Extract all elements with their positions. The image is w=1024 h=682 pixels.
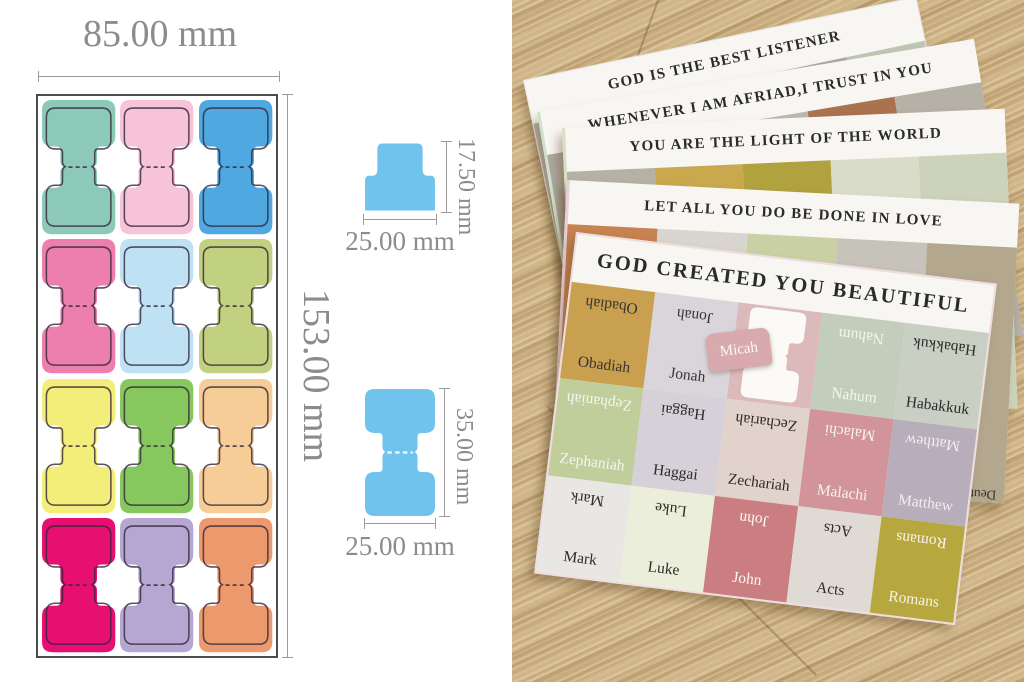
book-label-flipped: Haggai <box>660 400 707 423</box>
book-label: Zephaniah <box>558 449 625 475</box>
book-label-flipped: Luke <box>654 497 688 519</box>
bible-tab-cell: JohnJohn <box>703 496 798 603</box>
book-label: Zechariah <box>727 470 791 495</box>
book-label-flipped: Mark <box>570 487 606 509</box>
book-label: Luke <box>647 558 681 580</box>
bible-tab-cell: MalachiMalachi <box>798 409 893 516</box>
sheet-height-dimension-line <box>287 94 288 658</box>
peeled-tab: Micah <box>705 327 773 373</box>
folded-tab-shape <box>363 141 437 213</box>
sheet-tab <box>41 238 116 374</box>
product-listing-image: 85.00 mm 153.00 mm 17.50 mm 25.00 mm 35.… <box>0 0 1024 682</box>
full-tab-height-label: 35.00 mm <box>450 382 477 532</box>
sheet-tab <box>119 517 194 653</box>
sheet-tab <box>119 378 194 514</box>
book-label-flipped: Acts <box>823 518 853 539</box>
book-label: Nahum <box>830 385 877 408</box>
product-photo: GOD IS THE BEST LISTENER WHENEVER I AM A… <box>512 0 1024 682</box>
bible-tab-cell: NahumNahum <box>810 313 905 420</box>
book-label-flipped: Nahum <box>838 324 885 347</box>
book-label-flipped: Malachi <box>823 420 876 444</box>
tab-sheet <box>36 94 278 658</box>
full-tab-width-label: 25.00 mm <box>330 531 470 562</box>
book-label-flipped: Romans <box>895 527 948 551</box>
book-label: Habakkuk <box>905 394 970 420</box>
book-label: John <box>731 569 762 590</box>
sheet-tab <box>119 238 194 374</box>
book-label-flipped: Matthew <box>905 430 962 455</box>
bible-tab-cell: Micah <box>727 302 822 409</box>
sheet-width-dimension-line <box>38 76 280 77</box>
book-label-flipped: Zephaniah <box>566 389 633 415</box>
book-label: Jonah <box>668 365 706 387</box>
book-label: Romans <box>887 588 940 612</box>
book-label: Mark <box>562 548 598 570</box>
full-tab-width-line <box>364 523 436 524</box>
peeled-tab-label: Micah <box>719 339 759 361</box>
folded-tab-width-label: 25.00 mm <box>330 226 470 257</box>
book-label: Haggai <box>652 461 699 484</box>
sheet-dimension-diagram: 85.00 mm 153.00 mm 17.50 mm 25.00 mm 35.… <box>0 0 512 682</box>
bible-tab-cell: HabakkukHabakkuk <box>894 323 989 430</box>
sheet-tab <box>198 238 273 374</box>
sheet-tab <box>198 517 273 653</box>
book-label: Obadiah <box>577 354 631 378</box>
bible-tab-cell: ActsActs <box>786 506 881 613</box>
sheet-tab <box>41 517 116 653</box>
sheet-height-dimension-label: 153.00 mm <box>294 94 338 658</box>
book-label-flipped: John <box>739 508 770 529</box>
bible-tab-grid: ObadiahObadiahJonahJonahMicahNahumNahumH… <box>536 282 988 623</box>
sheet-tab <box>119 99 194 235</box>
bible-tab-cell: RomansRomans <box>870 516 965 623</box>
full-tab-height-line <box>444 388 445 517</box>
card-god-created-you-beautiful: GOD CREATED YOU BEAUTIFUL ObadiahObadiah… <box>534 232 997 625</box>
book-label-flipped: Jonah <box>676 304 714 326</box>
sheet-tab <box>198 378 273 514</box>
bible-tab-cell: MatthewMatthew <box>882 419 977 526</box>
bible-tab-cell: ZechariahZechariah <box>715 399 810 506</box>
bible-tab-cell: HaggaiHaggai <box>632 389 727 496</box>
bible-tab-cell: MarkMark <box>536 475 631 582</box>
book-label-flipped: Obadiah <box>584 293 638 317</box>
sheet-tab <box>41 378 116 514</box>
book-label-flipped: Zechariah <box>734 409 798 434</box>
bible-tab-cell: LukeLuke <box>620 485 715 592</box>
folded-tab-width-line <box>363 219 437 220</box>
bible-tab-cell: ZephaniahZephaniah <box>548 378 643 485</box>
sheet-tab <box>41 99 116 235</box>
book-label: Malachi <box>816 481 869 505</box>
book-label-flipped: Habakkuk <box>912 333 977 359</box>
bible-tab-cell: ObadiahObadiah <box>560 282 655 389</box>
book-label: Acts <box>815 579 845 600</box>
folded-tab-height-line <box>446 141 447 213</box>
sheet-tab <box>198 99 273 235</box>
book-label: Matthew <box>897 491 954 516</box>
sheet-width-dimension-label: 85.00 mm <box>30 12 290 56</box>
full-tab-shape <box>364 388 436 517</box>
